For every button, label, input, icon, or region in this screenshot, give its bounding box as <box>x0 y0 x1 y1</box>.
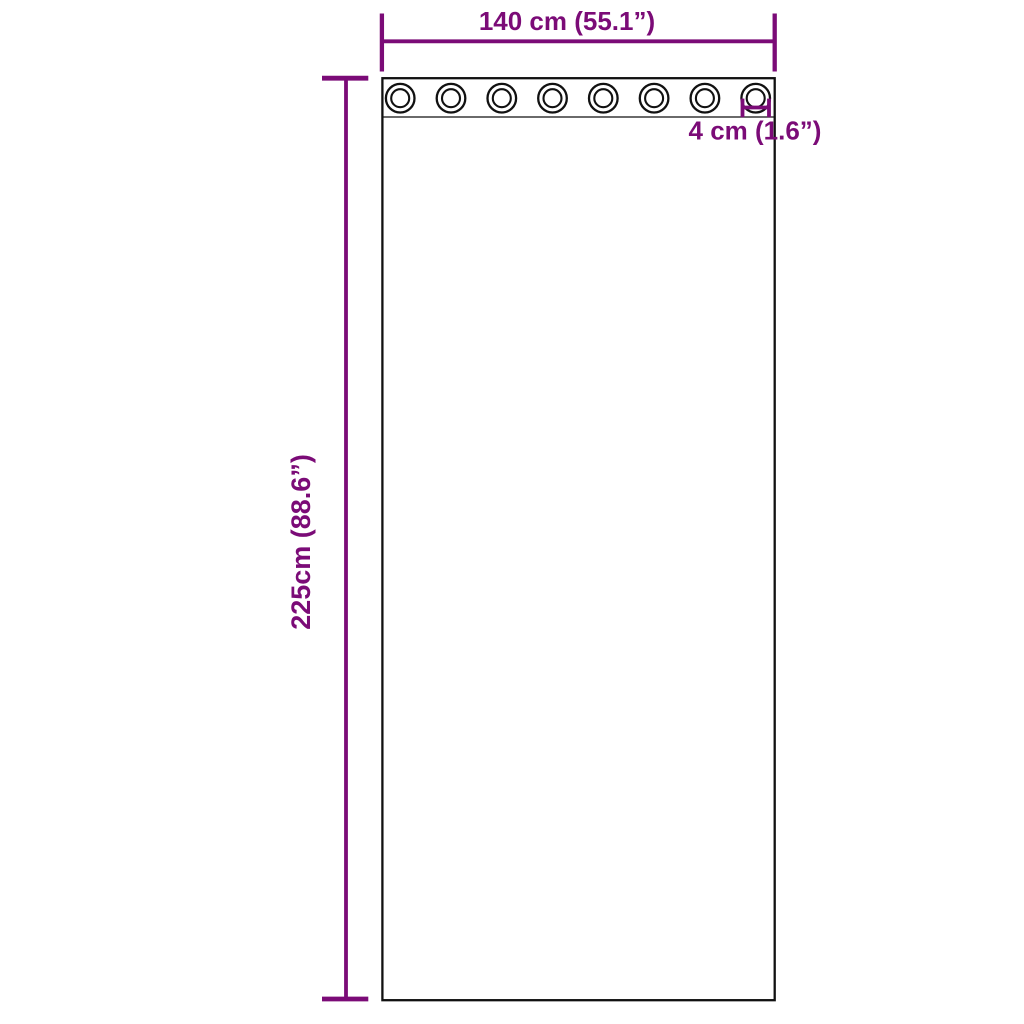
svg-text:225cm (88.6”): 225cm (88.6”) <box>286 454 316 630</box>
svg-text:4 cm (1.6”): 4 cm (1.6”) <box>689 115 822 145</box>
svg-text:140 cm (55.1”): 140 cm (55.1”) <box>479 6 655 36</box>
